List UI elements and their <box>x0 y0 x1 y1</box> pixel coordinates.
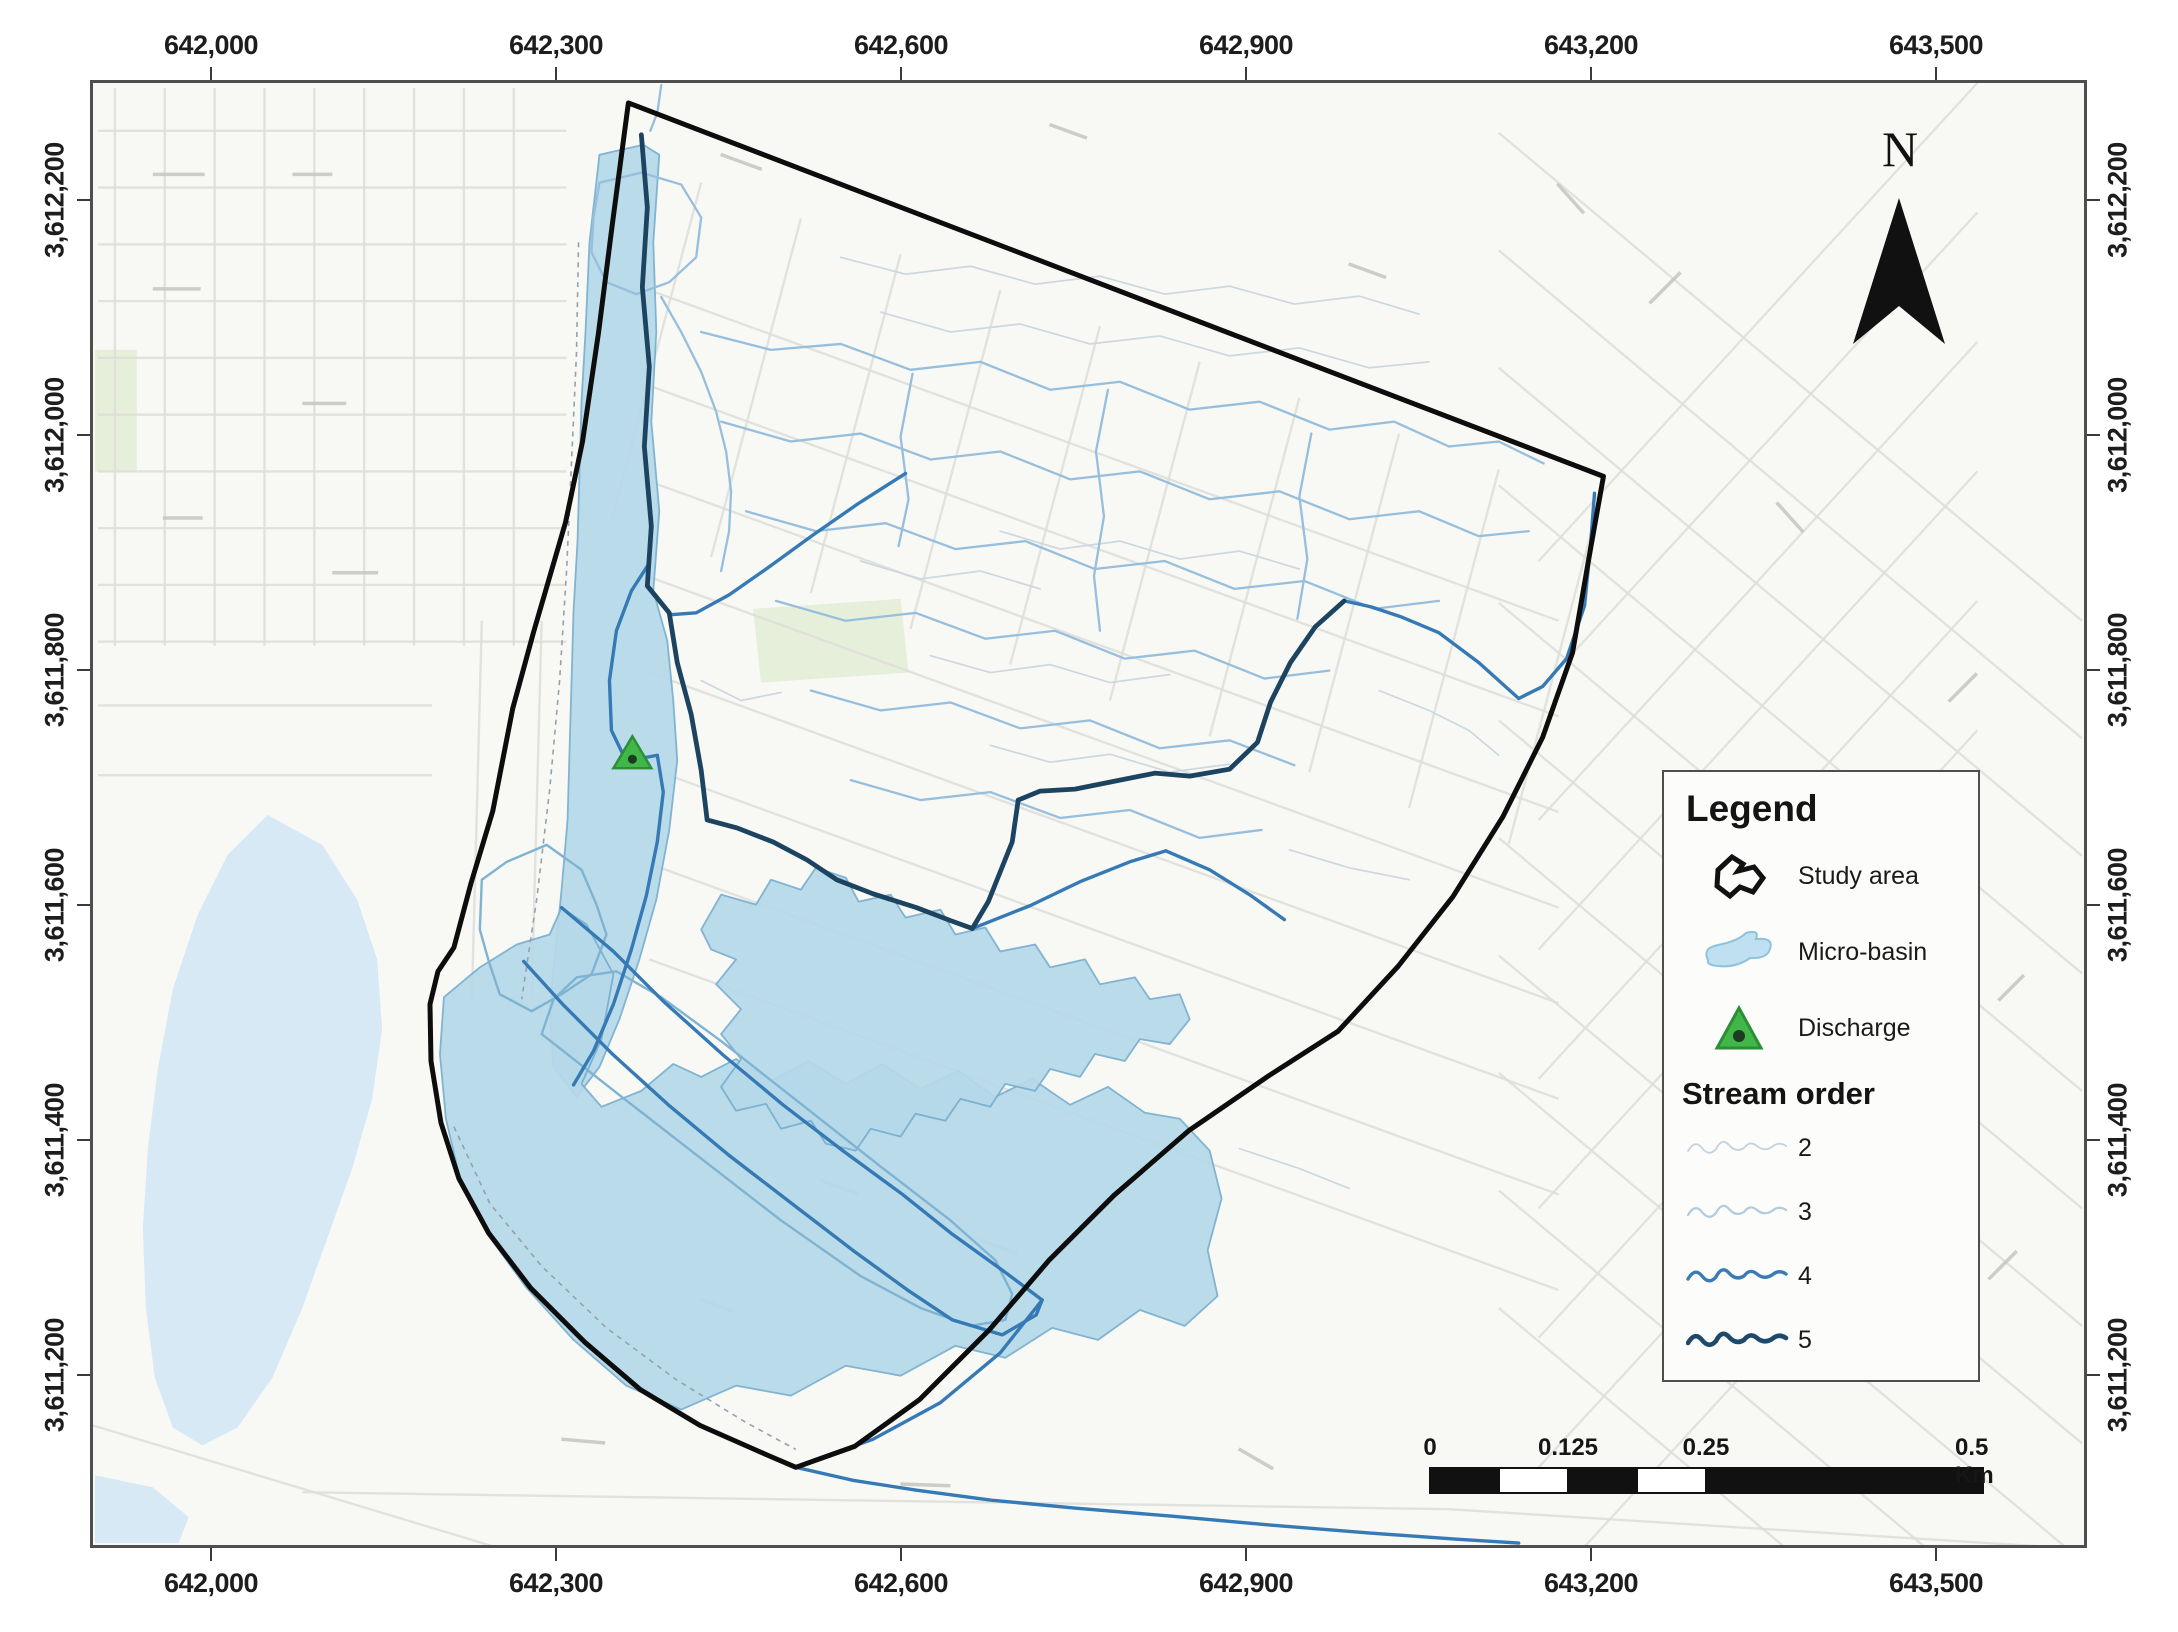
scale-bar-segment <box>1637 1468 1706 1493</box>
axis-label: 642,600 <box>854 30 948 61</box>
legend-stream-order-list: 2345 <box>1680 1116 1978 1372</box>
stream-line-icon <box>1680 1199 1798 1225</box>
legend: Legend Study area Micro-basin <box>1662 770 1980 1382</box>
stream-line-icon <box>1680 1263 1798 1289</box>
grid-tick <box>1935 1548 1937 1561</box>
street-name-mark <box>292 173 332 176</box>
micro-basin-polygon-icon <box>1680 924 1798 980</box>
grid-tick <box>77 199 90 201</box>
axis-label: 3,611,600 <box>40 848 71 962</box>
stream-line-icon <box>1680 1135 1798 1161</box>
grid-tick <box>1935 67 1937 80</box>
grid-tick <box>2087 1374 2100 1376</box>
legend-stream-order-row: 4 <box>1680 1244 1978 1308</box>
stream-line-path <box>1688 1270 1786 1281</box>
grid-tick <box>77 1139 90 1141</box>
legend-section-title: Stream order <box>1682 1076 1978 1112</box>
grid-tick <box>1245 1548 1247 1561</box>
street-name-mark <box>302 402 346 405</box>
stream-line-icon-svg <box>1686 1263 1792 1289</box>
scale-bar-segment <box>1568 1468 1637 1493</box>
north-label: N <box>1882 120 1918 178</box>
study-area-outline-icon <box>1680 848 1798 904</box>
legend-item-study-area: Study area <box>1680 838 1978 914</box>
grid-tick <box>900 1548 902 1561</box>
axis-label: 642,900 <box>1199 30 1293 61</box>
axis-label: 642,300 <box>509 30 603 61</box>
scale-bar: 00.1250.250.5 Km <box>1400 1420 2060 1530</box>
grid-tick <box>2087 669 2100 671</box>
stream-line-icon <box>1680 1327 1798 1353</box>
axis-label: 643,200 <box>1544 1568 1638 1599</box>
axis-label: 642,600 <box>854 1568 948 1599</box>
scale-bar-segment <box>1706 1468 1983 1493</box>
grid-tick <box>210 67 212 80</box>
axis-label: 643,500 <box>1889 1568 1983 1599</box>
axis-label: 642,000 <box>164 1568 258 1599</box>
legend-title: Legend <box>1686 788 1978 830</box>
green-area <box>753 599 909 683</box>
grid-tick <box>555 1548 557 1561</box>
grid-tick <box>2087 1139 2100 1141</box>
grid-tick <box>900 67 902 80</box>
stream-order-label: 2 <box>1798 1134 1812 1163</box>
scale-bar-label: 0 <box>1423 1434 1436 1462</box>
axis-label: 642,900 <box>1199 1568 1293 1599</box>
scale-bar-label: 0.5 Km <box>1955 1434 2025 1490</box>
stream-order-label: 5 <box>1798 1326 1812 1355</box>
street-name-mark <box>332 571 378 574</box>
axis-label: 643,200 <box>1544 30 1638 61</box>
legend-item-label: Study area <box>1798 862 1919 891</box>
legend-stream-order-row: 2 <box>1680 1116 1978 1180</box>
axis-label: 3,612,200 <box>2103 142 2134 258</box>
axis-label: 3,611,400 <box>2103 1083 2134 1197</box>
axis-label: 3,611,600 <box>2103 848 2134 962</box>
map-figure: 642,000642,300642,600642,900643,200643,5… <box>0 0 2178 1632</box>
grid-tick <box>210 1548 212 1561</box>
scale-bar-label: 0.125 <box>1538 1434 1598 1462</box>
stream-line-icon-svg <box>1686 1135 1792 1161</box>
grid-tick <box>1590 1548 1592 1561</box>
street-name-mark <box>153 173 205 176</box>
axis-label: 642,300 <box>509 1568 603 1599</box>
stream-line-path <box>1688 1142 1786 1153</box>
axis-label: 3,611,200 <box>2103 1318 2134 1432</box>
grid-tick <box>2087 904 2100 906</box>
legend-stream-order-row: 3 <box>1680 1180 1978 1244</box>
legend-item-label: Micro-basin <box>1798 938 1927 967</box>
axis-label: 643,500 <box>1889 30 1983 61</box>
discharge-marker-dot <box>628 755 637 764</box>
grid-tick <box>1590 67 1592 80</box>
scale-bar-segment <box>1499 1468 1568 1493</box>
grid-tick <box>77 669 90 671</box>
grid-tick <box>77 1374 90 1376</box>
stream-line-icon-svg <box>1686 1199 1792 1225</box>
axis-label: 3,612,200 <box>40 142 71 258</box>
stream-line-path <box>1688 1206 1786 1217</box>
axis-label: 3,612,000 <box>2103 377 2134 493</box>
grid-tick <box>555 67 557 80</box>
grid-tick <box>77 904 90 906</box>
stream-order-label: 4 <box>1798 1262 1812 1291</box>
legend-item-discharge: Discharge <box>1680 990 1978 1066</box>
stream-order-label: 3 <box>1798 1198 1812 1227</box>
axis-label: 3,611,200 <box>40 1318 71 1432</box>
legend-item-micro-basin: Micro-basin <box>1680 914 1978 990</box>
scale-bar-label: 0.25 <box>1683 1434 1730 1462</box>
discharge-triangle-icon <box>1680 1000 1798 1056</box>
north-arrow: N <box>1840 120 1960 360</box>
axis-label: 3,611,800 <box>2103 613 2134 727</box>
street-name-mark <box>163 516 203 519</box>
axis-label: 3,611,800 <box>40 613 71 727</box>
axis-label: 3,611,400 <box>40 1083 71 1197</box>
axis-label: 3,612,000 <box>40 377 71 493</box>
grid-tick <box>77 434 90 436</box>
stream-line-path <box>1688 1334 1786 1345</box>
grid-tick <box>2087 434 2100 436</box>
grid-tick <box>2087 199 2100 201</box>
scale-bar-segment <box>1430 1468 1499 1493</box>
legend-stream-order-row: 5 <box>1680 1308 1978 1372</box>
stream-line-icon-svg <box>1686 1327 1792 1353</box>
grid-tick <box>1245 67 1247 80</box>
axis-label: 642,000 <box>164 30 258 61</box>
legend-item-label: Discharge <box>1798 1014 1911 1043</box>
street-name-mark <box>153 287 201 290</box>
